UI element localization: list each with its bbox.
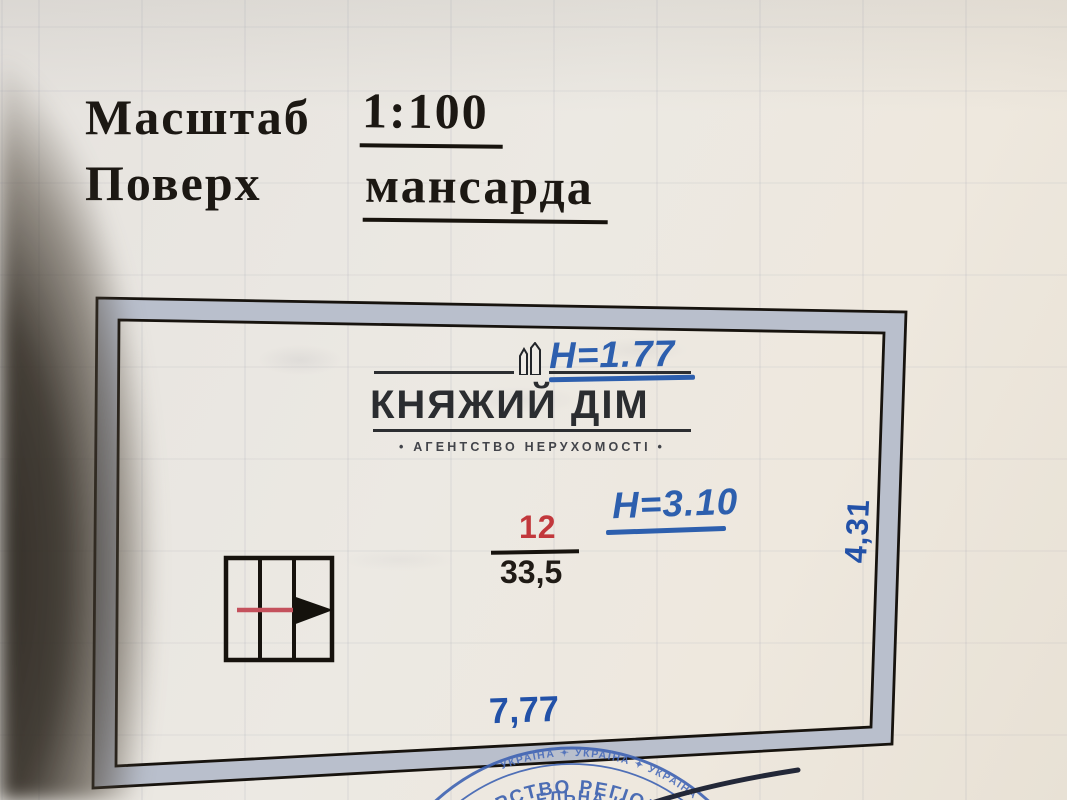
buildings-icon [512, 342, 550, 375]
agency-brand: КНЯЖИЙ ДІМ [370, 385, 650, 425]
scale-label: Масштаб [85, 92, 311, 142]
floor-value: мансарда [363, 160, 608, 225]
watermark-top-line-left [374, 371, 514, 374]
stairs-symbol [226, 558, 333, 660]
stairs-direction-arrow [293, 596, 333, 625]
width-dimension: 7,77 [488, 691, 559, 729]
scale-value: 1:100 [360, 85, 503, 148]
floor-label: Поверх [85, 158, 262, 208]
floorplan-photo: УКРАЇНА ✦ УКРАЇНА ✦ УКРАЇНА СТЕРСТВО РЕГ… [0, 0, 1067, 800]
agency-tagline: • АГЕНТСТВО НЕРУХОМОСТІ • [373, 441, 691, 454]
room-area: 33,5 [500, 556, 562, 588]
watermark-bottom-line [373, 429, 691, 432]
ceiling-height-main: Н=3.10 [611, 483, 739, 524]
ceiling-height-upper: Н=1.77 [549, 335, 676, 374]
side-dimension: 4,31 [840, 498, 874, 564]
room-number: 12 [519, 511, 557, 543]
